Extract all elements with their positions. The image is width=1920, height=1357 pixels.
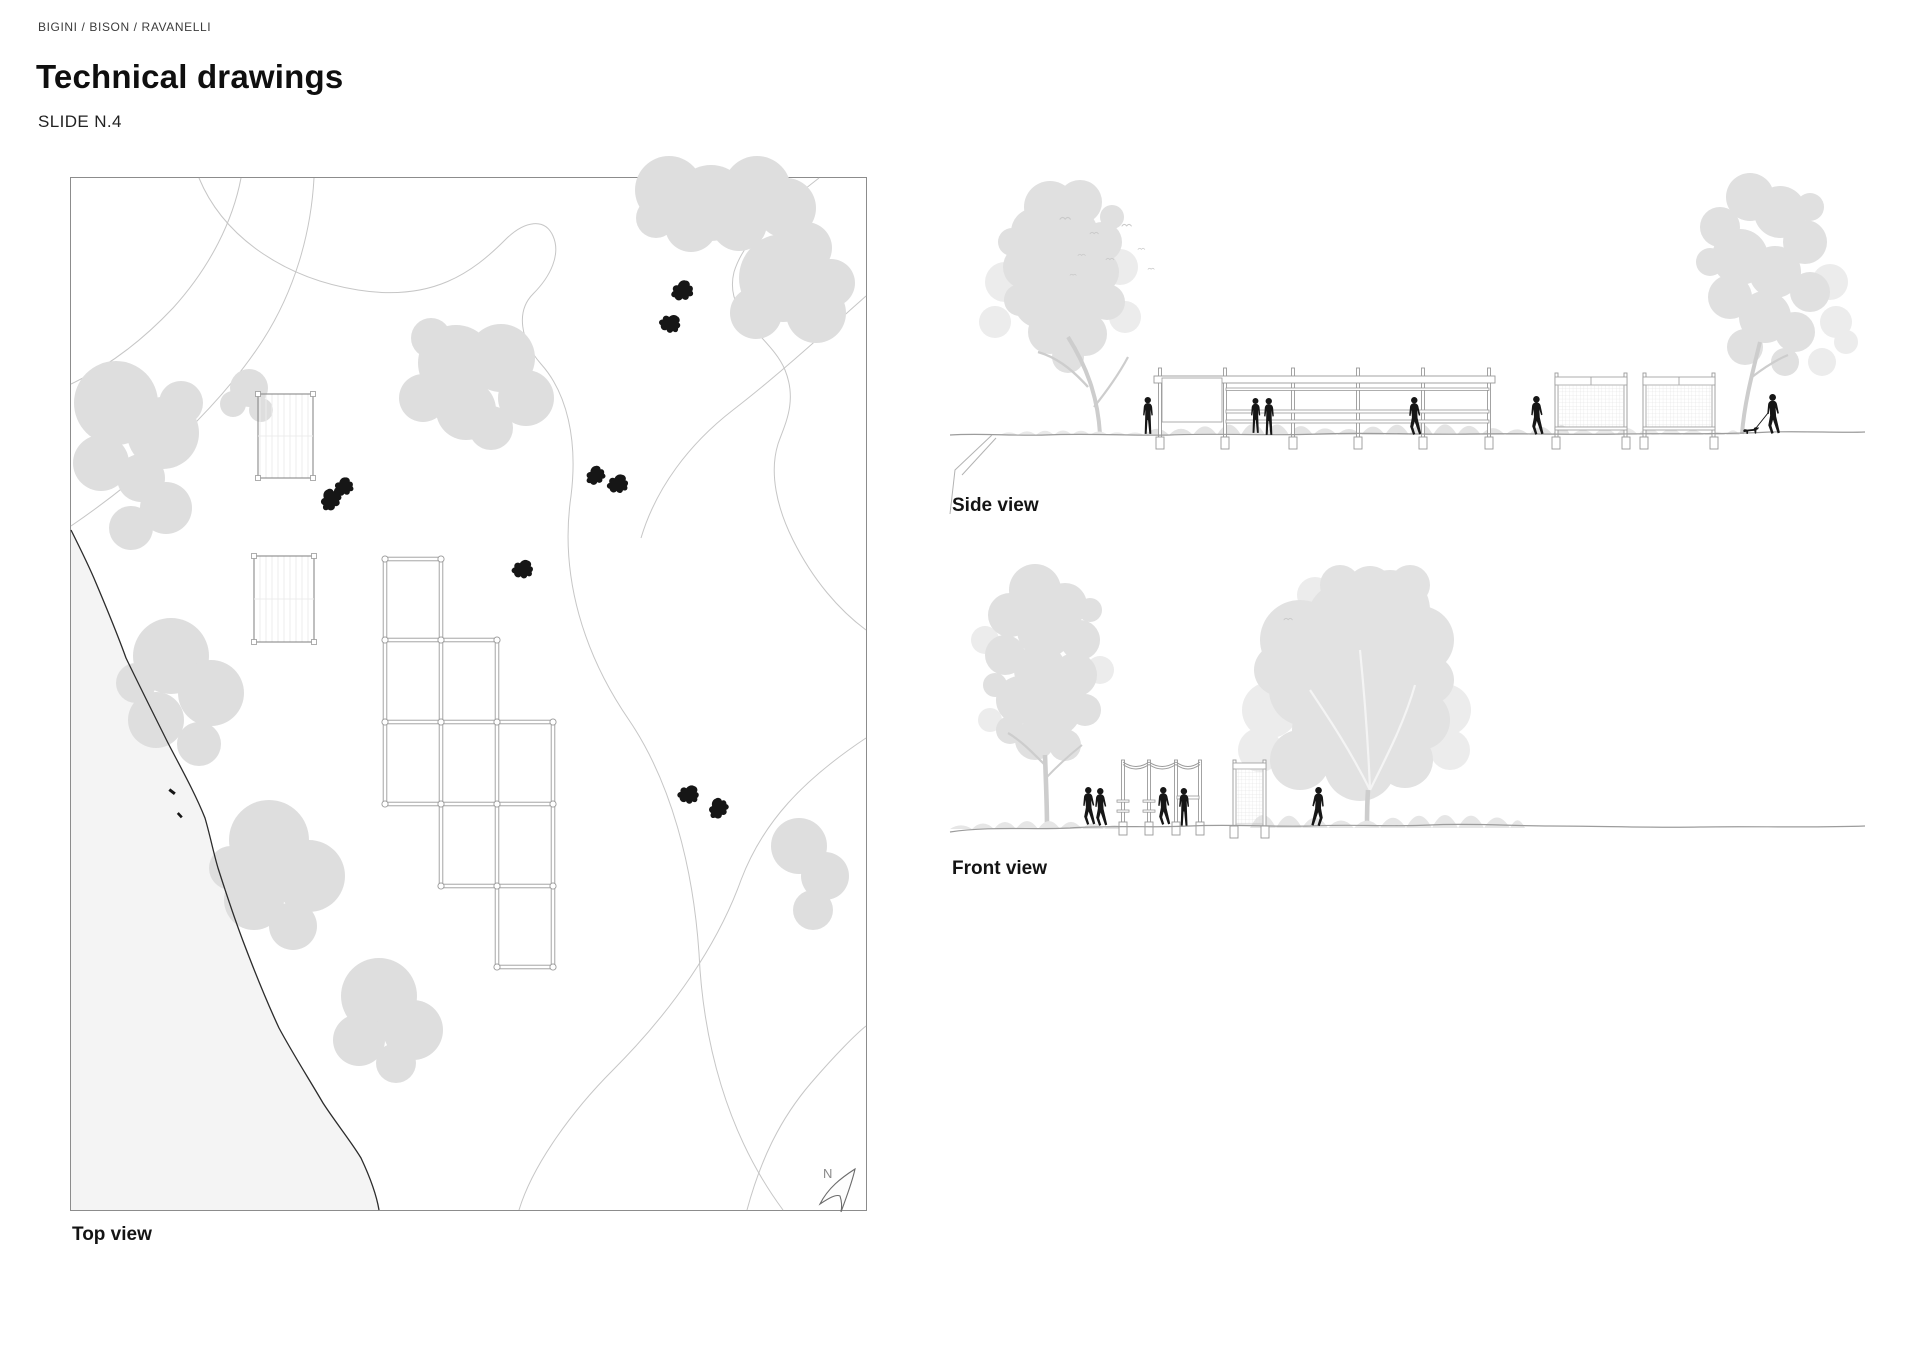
person-figure (587, 466, 606, 485)
bench-rail (1226, 420, 1489, 423)
platform-decks (252, 392, 317, 645)
mesh-panel (1640, 373, 1718, 449)
person-figure (605, 471, 632, 498)
credits: BIGINI / BISON / RAVANELLI (38, 20, 211, 34)
side-view-label: Side view (952, 495, 1039, 517)
tree-canopy (771, 818, 849, 930)
side-view-drawing (950, 172, 1865, 522)
slide-number: SLIDE N.4 (38, 112, 122, 132)
platform (252, 554, 317, 645)
dog-leash (1756, 413, 1768, 428)
pergola-panel (1162, 378, 1222, 422)
front-view-drawing (950, 560, 1865, 890)
mesh-panel (1552, 373, 1630, 449)
tree-canopy (983, 564, 1102, 761)
person-figure (1158, 787, 1170, 825)
tree-canopy (73, 361, 203, 550)
person-figure (510, 556, 537, 583)
tree-canopy (998, 180, 1125, 373)
mesh-panels (1552, 373, 1718, 449)
deck-grid-structure (382, 556, 556, 970)
person-figure (1179, 788, 1189, 826)
grid-joints (382, 556, 556, 970)
top-view-panel: N (70, 177, 867, 1211)
person-figure (1143, 397, 1153, 434)
person-figure (657, 310, 685, 338)
person-figure (670, 278, 696, 304)
compass-n-label: N (823, 1166, 832, 1181)
person-figure (1083, 787, 1095, 825)
person-figure (1095, 788, 1107, 826)
person-figure (1767, 394, 1780, 434)
site-plan-drawing: N (71, 178, 866, 1210)
north-arrow: N (820, 1166, 855, 1212)
person-figure (707, 796, 732, 821)
footings (1156, 437, 1493, 449)
rope-swags (1123, 762, 1200, 769)
top-view-label: Top view (72, 1224, 152, 1246)
person-figure (675, 781, 703, 809)
tree-canopy (399, 318, 554, 450)
pergola-structure (1154, 368, 1495, 449)
front-view-label: Front view (952, 858, 1047, 880)
tree-canopy (1696, 173, 1830, 376)
tree-canopy (1254, 565, 1454, 801)
slide-canvas: { "header": { "credits": "BIGINI / BISON… (0, 0, 1920, 1357)
platform (256, 392, 316, 481)
footings (1119, 822, 1204, 835)
tree-canopy (333, 958, 443, 1083)
page-title: Technical drawings (36, 58, 343, 96)
